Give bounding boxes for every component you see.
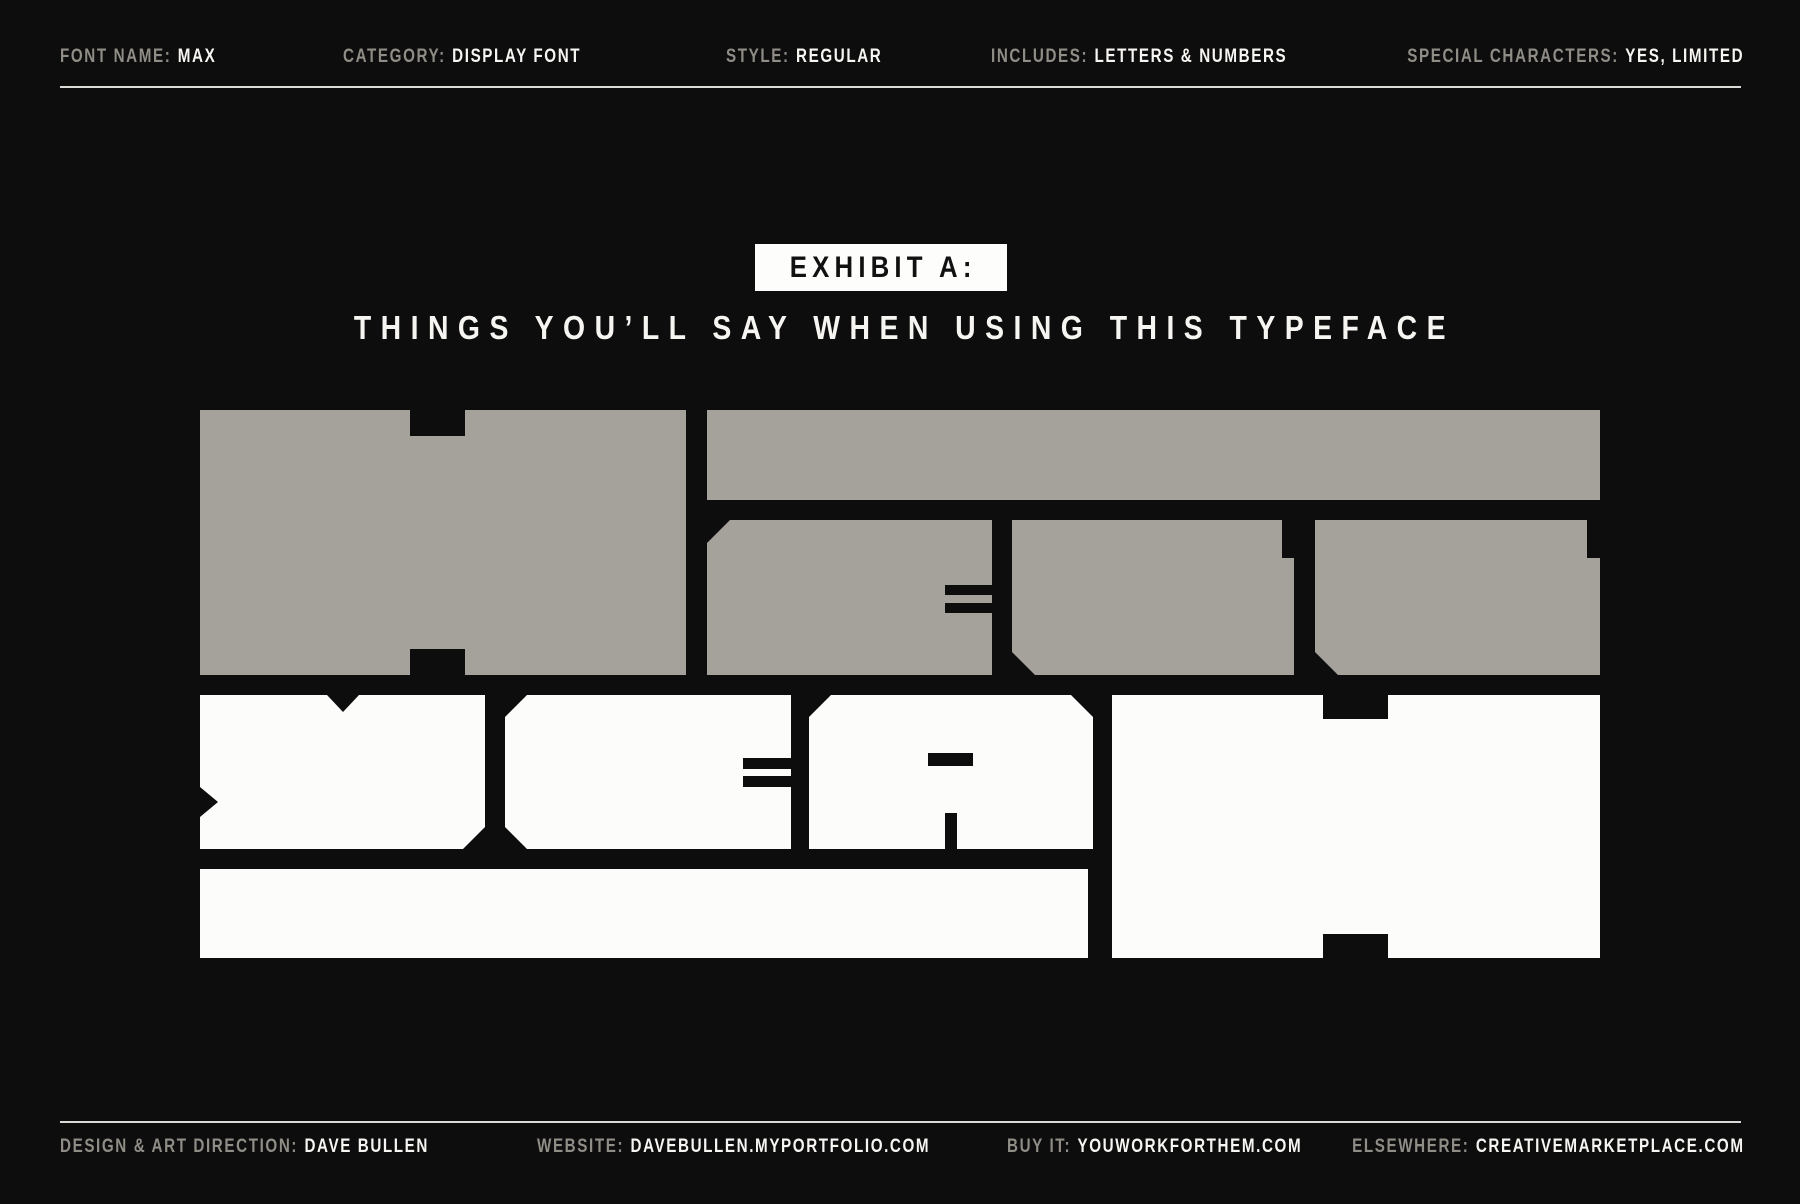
glyph-heck-e — [707, 520, 992, 675]
glyph-yeah-h — [1112, 695, 1600, 958]
glyph-yeah-e — [505, 695, 791, 849]
footer-label: ELSEWHERE: — [1353, 1136, 1470, 1157]
glyph-heck-top-bar — [707, 410, 1600, 500]
footer-item-design: DESIGN & ART DIRECTION:DAVE BULLEN — [60, 1136, 521, 1158]
specimen-poster: FONT NAME:MAX CATEGORY:DISPLAY FONT STYL… — [0, 0, 1800, 1204]
footer-value: DAVEBULLEN.MYPORTFOLIO.COM — [630, 1136, 930, 1157]
glyph-heck-c — [1012, 520, 1294, 675]
word-heck — [200, 410, 1600, 675]
glyph-heck-k — [1315, 520, 1600, 675]
word-yeah — [200, 695, 1600, 958]
footer-label: BUY IT: — [1007, 1136, 1071, 1157]
glyph-yeah-a-counter — [928, 753, 973, 766]
footer-value: DAVE BULLEN — [304, 1136, 429, 1157]
footer-label: DESIGN & ART DIRECTION: — [60, 1136, 298, 1157]
specimen-glyphs — [0, 0, 1800, 1204]
footer-label: WEBSITE: — [537, 1136, 624, 1157]
glyph-yeah-y — [200, 695, 485, 849]
glyph-yeah-bottom-bar — [200, 869, 1088, 958]
footer-rule — [60, 1121, 1741, 1123]
glyph-heck-h — [200, 410, 686, 675]
glyph-yeah-a — [809, 695, 1093, 849]
footer-item-website: WEBSITE:DAVEBULLEN.MYPORTFOLIO.COM — [537, 1136, 1029, 1158]
footer-value: CREATIVEMARKETPLACE.COM — [1476, 1136, 1745, 1157]
footer-item-elsewhere: ELSEWHERE:CREATIVEMARKETPLACE.COM — [1254, 1136, 1745, 1158]
